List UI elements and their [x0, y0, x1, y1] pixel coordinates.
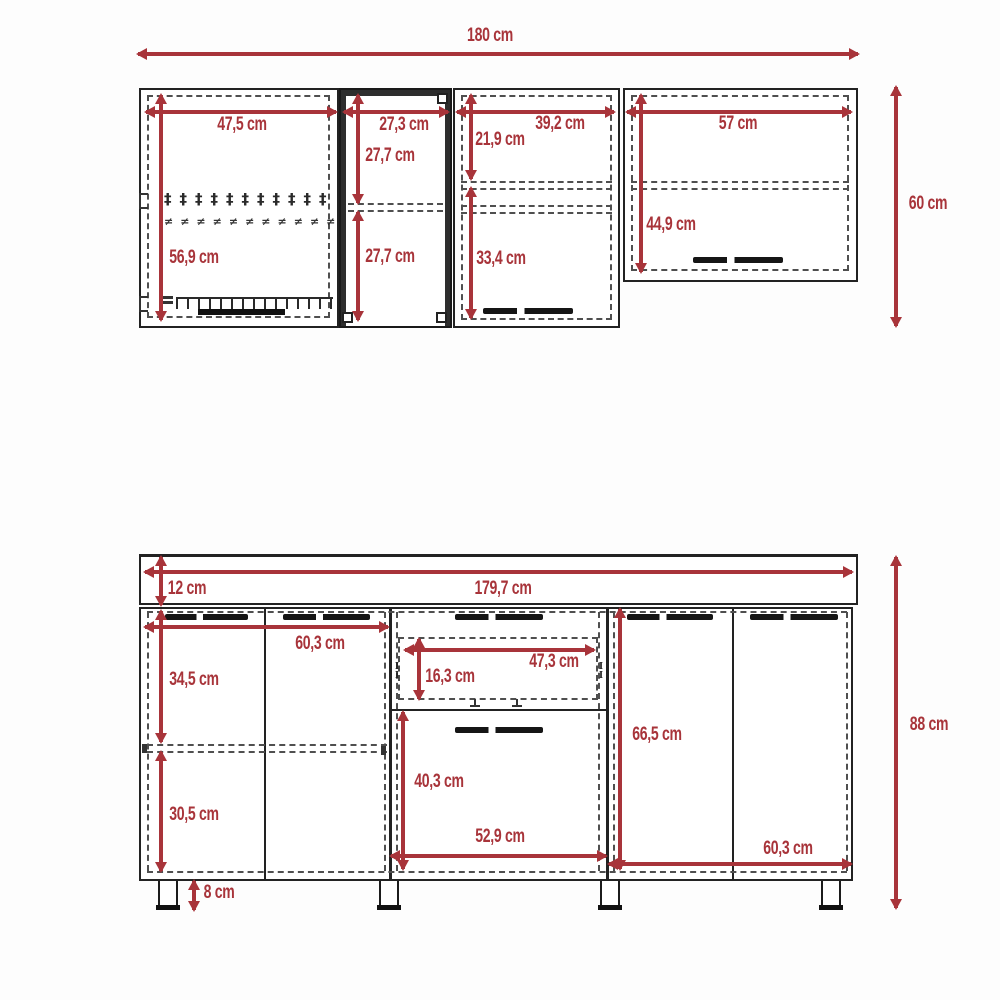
- arrow-upper-right-height: [639, 95, 643, 272]
- drawer-runner-right-icon: I I: [594, 662, 608, 680]
- arrow-center-door-width: [391, 854, 606, 858]
- base-dashed-v6: [846, 612, 848, 871]
- rail-rack-bar: [198, 309, 285, 315]
- kitchen-dimension-diagram: ‡‡‡‡‡‡‡‡‡‡‡ ≠≠≠≠≠≠≠≠≠≠≠ 180 cm 47,5 cm 5…: [0, 0, 1000, 1000]
- arrow-upper-total-width: [138, 52, 858, 56]
- base-divider-3: [606, 609, 609, 879]
- arrow-base-left-top: [159, 611, 163, 742]
- base-divider-4: [732, 609, 734, 879]
- dim-upper-left-width: 47,5 cm: [217, 114, 267, 136]
- base-door5-handle: [627, 614, 713, 620]
- dim-base-right-width: 60,3 cm: [763, 838, 813, 860]
- arrow-base-right-width: [609, 862, 851, 866]
- dim-open-unit-top: 27,7 cm: [365, 145, 415, 167]
- base-door1-handle: [165, 614, 248, 620]
- arrow-leg-height: [192, 881, 196, 910]
- dim-upper-middle-width: 39,2 cm: [535, 113, 585, 135]
- dim-drawer-height: 16,3 cm: [425, 666, 475, 688]
- plate-rack-row-icon: ‡‡‡‡‡‡‡‡‡‡‡: [164, 190, 338, 213]
- arrow-base-total-width: [145, 570, 852, 574]
- base-dashed-v2: [384, 612, 386, 871]
- arrow-countertop-height: [159, 557, 163, 605]
- arrow-upper-middle-top: [469, 95, 473, 179]
- rail-rack-icon: [176, 297, 333, 309]
- drawer-runner-left-icon: I I: [390, 662, 404, 680]
- open-unit-hinge-plate-bottom-right: [436, 312, 447, 323]
- upper-middle-shelf-line-1: [461, 181, 612, 190]
- drawer-bottom-line: [390, 709, 607, 711]
- dim-base-right-height: 66,5 cm: [632, 724, 682, 746]
- bracket-clip-icon-bottom: [139, 296, 148, 312]
- dim-base-left-width: 60,3 cm: [295, 633, 345, 655]
- dim-base-left-bottom: 30,5 cm: [169, 804, 219, 826]
- base-bottom-dashed: [147, 871, 847, 873]
- dim-upper-total-width: 180 cm: [467, 25, 513, 47]
- base-top-dashed: [147, 611, 847, 613]
- base-door2-handle: [283, 614, 370, 620]
- upper-right-door-handle: [693, 257, 783, 263]
- upper-middle-door-handle: [483, 308, 573, 314]
- shelf-pin-right: [381, 746, 386, 755]
- base-dashed-v5: [613, 612, 615, 871]
- arrow-upper-total-height: [894, 87, 898, 326]
- dim-upper-left-height: 56,9 cm: [169, 247, 219, 269]
- leg-4: [821, 881, 841, 907]
- open-unit-right-frame: [445, 90, 450, 326]
- bracket-clip-icon-top: [139, 193, 148, 209]
- dim-open-unit-bottom: 27,7 cm: [365, 246, 415, 268]
- arrow-drawer-height: [417, 639, 421, 699]
- dim-countertop-height: 12 cm: [168, 578, 206, 600]
- arrow-open-unit-top: [356, 95, 360, 203]
- dim-upper-total-height: 60 cm: [909, 193, 947, 215]
- open-unit-hinge-plate-top-right: [437, 93, 448, 104]
- center-door-handle: [455, 727, 543, 733]
- arrow-open-unit-bottom: [356, 212, 360, 320]
- dim-upper-middle-bottom: 33,4 cm: [476, 248, 526, 270]
- arrow-base-left-width: [145, 625, 388, 629]
- leg-2: [379, 881, 399, 907]
- drawer-stop-mark-left: [470, 699, 480, 707]
- dim-base-total-height: 88 cm: [910, 714, 948, 736]
- upper-middle-shelf-line-2: [461, 205, 612, 214]
- dim-center-door-height: 40,3 cm: [414, 771, 464, 793]
- arrow-center-door-height: [401, 712, 405, 869]
- drawer-stop-mark-right: [512, 699, 522, 707]
- shelf-pin-left: [142, 744, 147, 753]
- bracket-mark-icon: [163, 296, 173, 304]
- base-dashed-v1: [147, 612, 149, 871]
- base-divider-2: [389, 609, 392, 879]
- arrow-base-total-height: [894, 557, 898, 908]
- base-dashed-v4: [598, 612, 600, 871]
- leg-1: [158, 881, 178, 907]
- dim-base-left-top: 34,5 cm: [169, 669, 219, 691]
- dim-base-total-width: 179,7 cm: [474, 578, 531, 600]
- arrow-upper-left-height: [159, 95, 163, 320]
- dim-drawer-width: 47,3 cm: [529, 651, 579, 673]
- plate-rack-row2-icon: ≠≠≠≠≠≠≠≠≠≠≠: [164, 215, 338, 230]
- base-door6-handle: [750, 614, 838, 620]
- dim-upper-right-height: 44,9 cm: [646, 214, 696, 236]
- dim-leg-height: 8 cm: [204, 882, 235, 904]
- dim-upper-middle-top: 21,9 cm: [475, 129, 525, 151]
- dim-center-door-width: 52,9 cm: [475, 826, 525, 848]
- leg-3: [600, 881, 620, 907]
- upper-right-shelf-line: [631, 181, 849, 190]
- open-unit-left-frame: [341, 90, 346, 326]
- base-left-shelf-line: [147, 744, 387, 753]
- dim-open-unit-width: 27,3 cm: [379, 114, 429, 136]
- arrow-base-left-bottom: [159, 752, 163, 871]
- arrow-upper-middle-bottom: [469, 188, 473, 318]
- drawer-handle: [455, 614, 543, 620]
- arrow-base-right-height: [618, 609, 622, 869]
- dim-upper-right-width: 57 cm: [719, 113, 757, 135]
